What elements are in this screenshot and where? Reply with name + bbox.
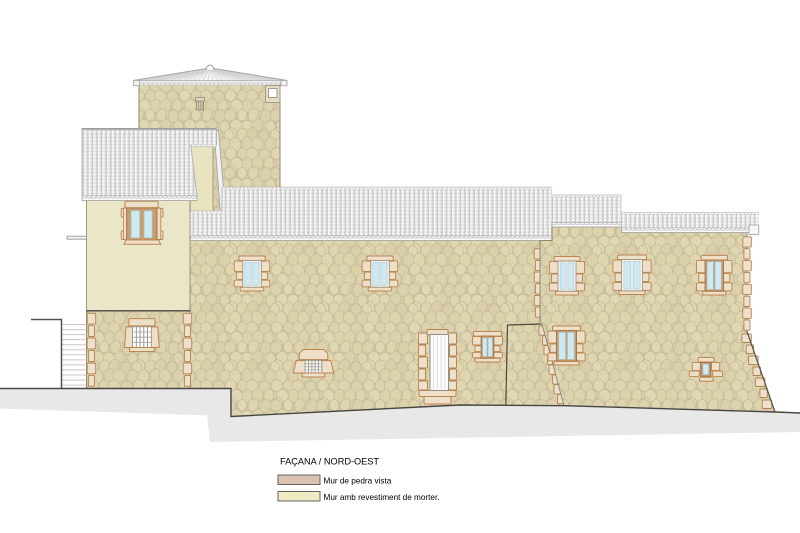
svg-text:Mur amb revestiment de morter.: Mur amb revestiment de morter. (324, 493, 440, 502)
svg-text:FAÇANA / NORD-OEST: FAÇANA / NORD-OEST (280, 457, 379, 467)
svg-text:Mur de pedra vista: Mur de pedra vista (324, 477, 392, 486)
